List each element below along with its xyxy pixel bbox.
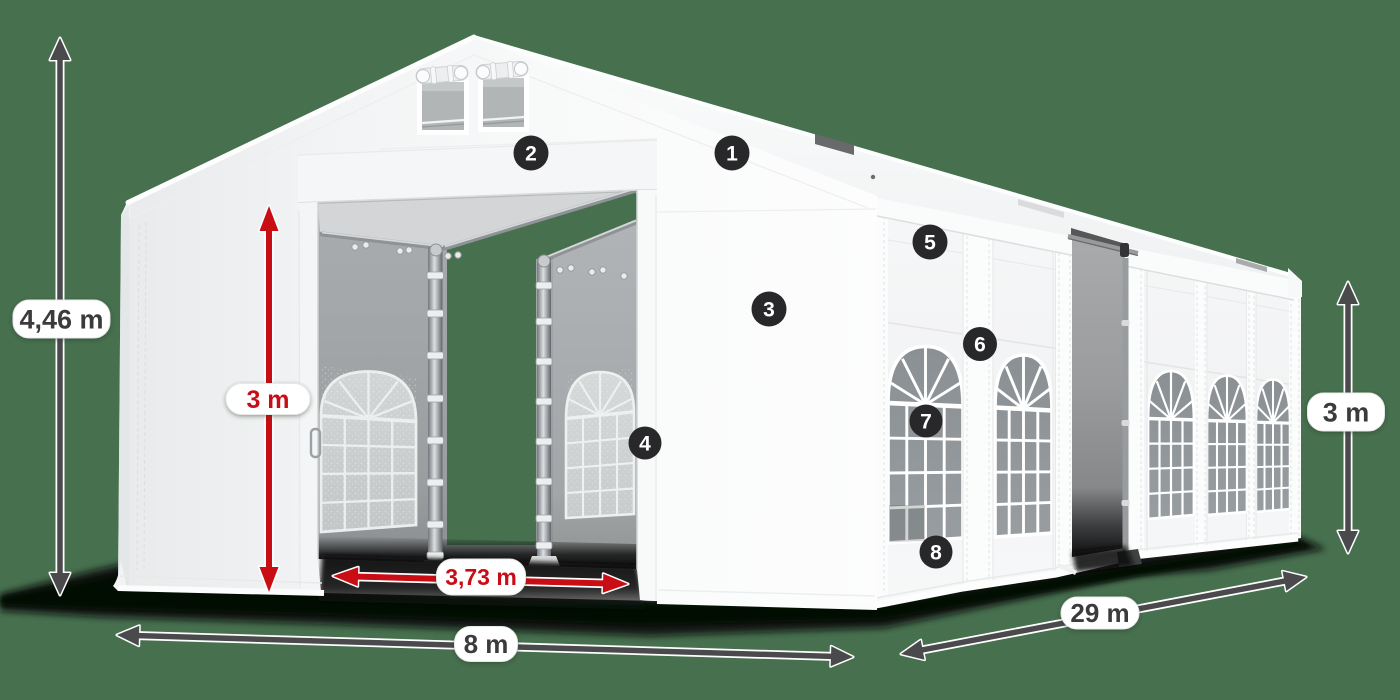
- svg-text:3 m: 3 m: [1323, 398, 1370, 428]
- svg-text:4,46 m: 4,46 m: [19, 305, 103, 335]
- svg-text:3 m: 3 m: [246, 386, 289, 414]
- svg-text:1: 1: [726, 143, 738, 166]
- svg-text:2: 2: [525, 143, 537, 166]
- svg-text:8 m: 8 m: [464, 629, 509, 659]
- svg-text:3,73 m: 3,73 m: [445, 564, 517, 590]
- svg-text:6: 6: [974, 334, 986, 357]
- svg-text:3: 3: [763, 299, 775, 322]
- svg-text:4: 4: [639, 433, 651, 456]
- svg-text:5: 5: [924, 232, 936, 255]
- svg-text:29 m: 29 m: [1070, 598, 1129, 628]
- svg-text:8: 8: [930, 542, 942, 565]
- svg-text:7: 7: [920, 411, 932, 434]
